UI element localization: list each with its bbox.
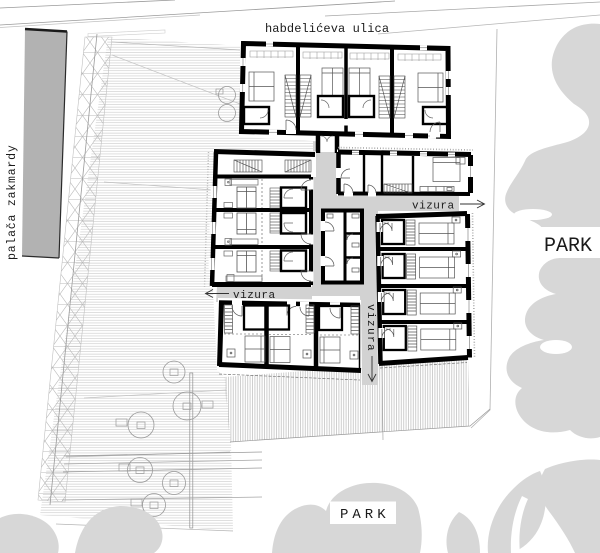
svg-text:vizura: vizura bbox=[412, 201, 455, 213]
svg-text:vizura: vizura bbox=[233, 290, 276, 302]
svg-text:PARK: PARK bbox=[544, 235, 592, 258]
svg-text:palača zakmardy: palača zakmardy bbox=[6, 144, 19, 260]
svg-text:PARK: PARK bbox=[340, 507, 390, 523]
svg-text:habdelićeva ulica: habdelićeva ulica bbox=[265, 22, 389, 36]
svg-text:vizura: vizura bbox=[364, 304, 376, 352]
